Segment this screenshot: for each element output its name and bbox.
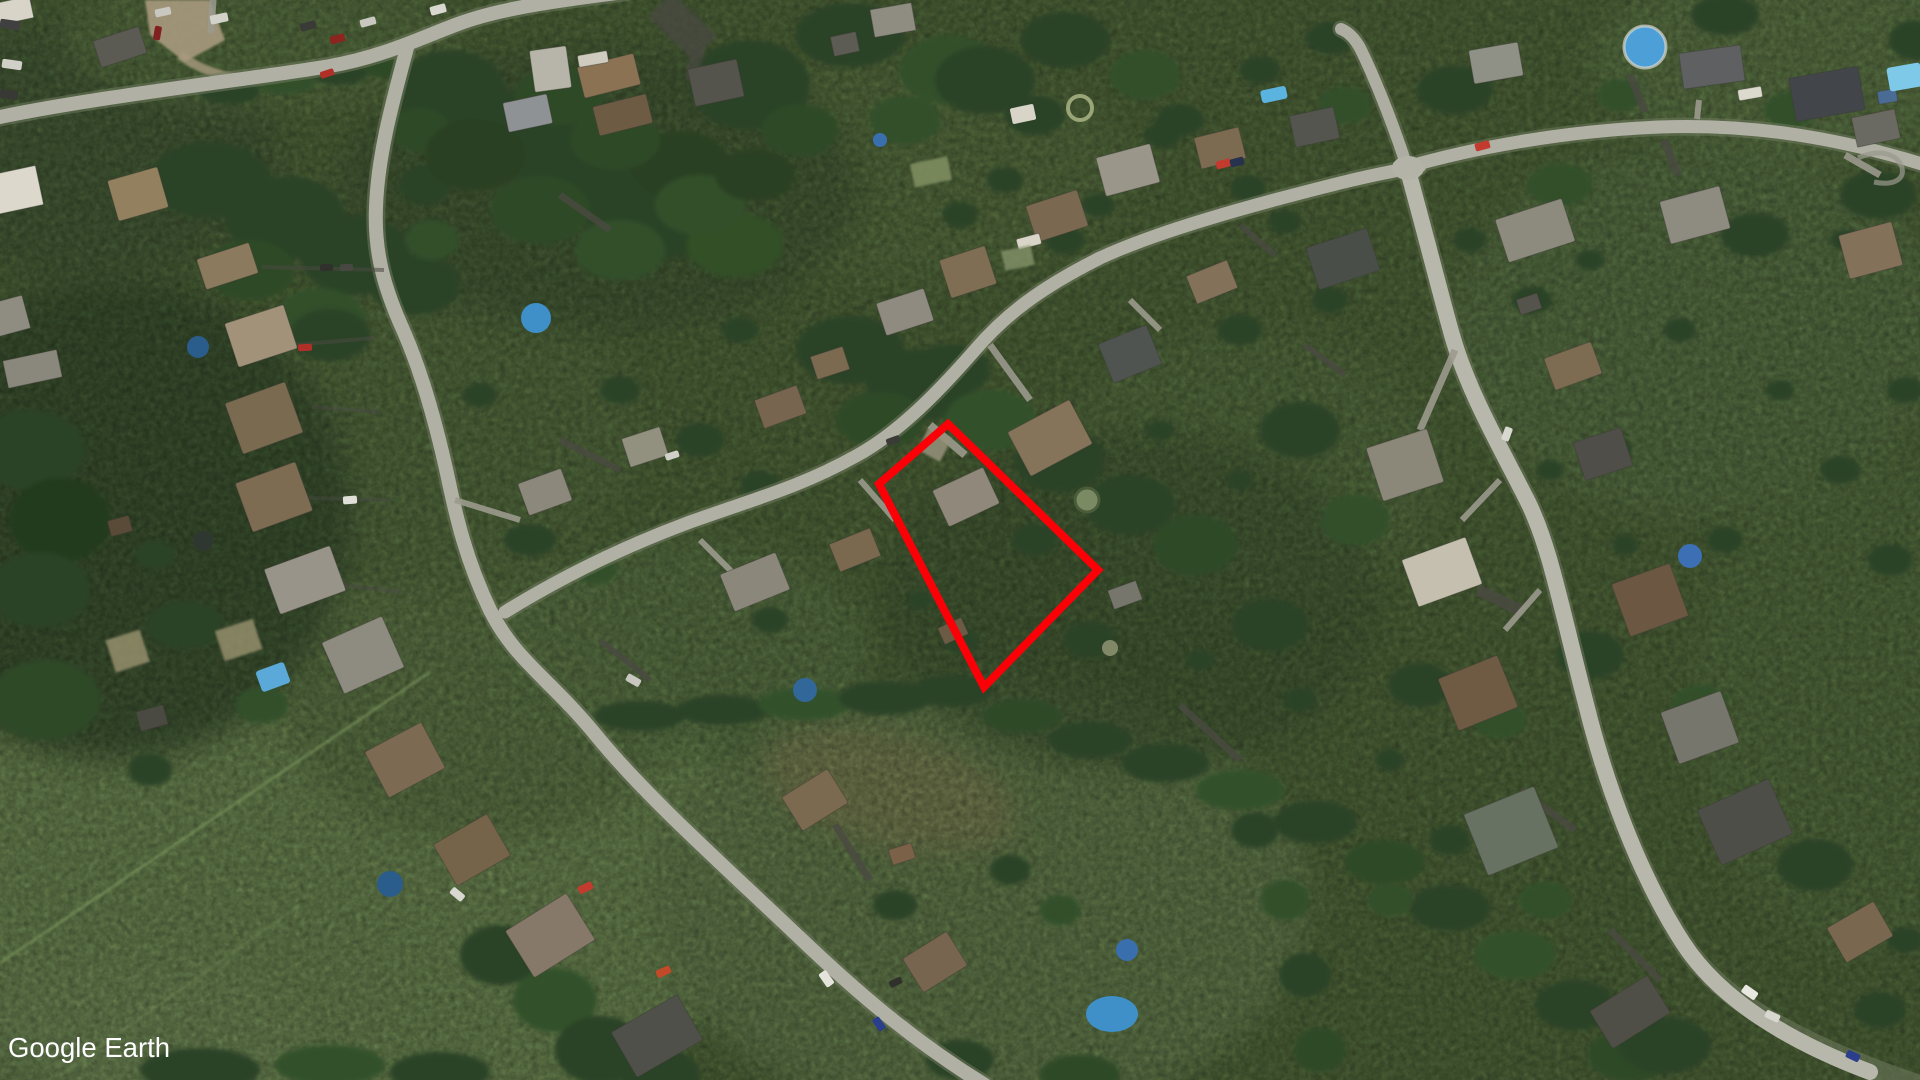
svg-text:Google Earth: Google Earth [8,1032,170,1063]
